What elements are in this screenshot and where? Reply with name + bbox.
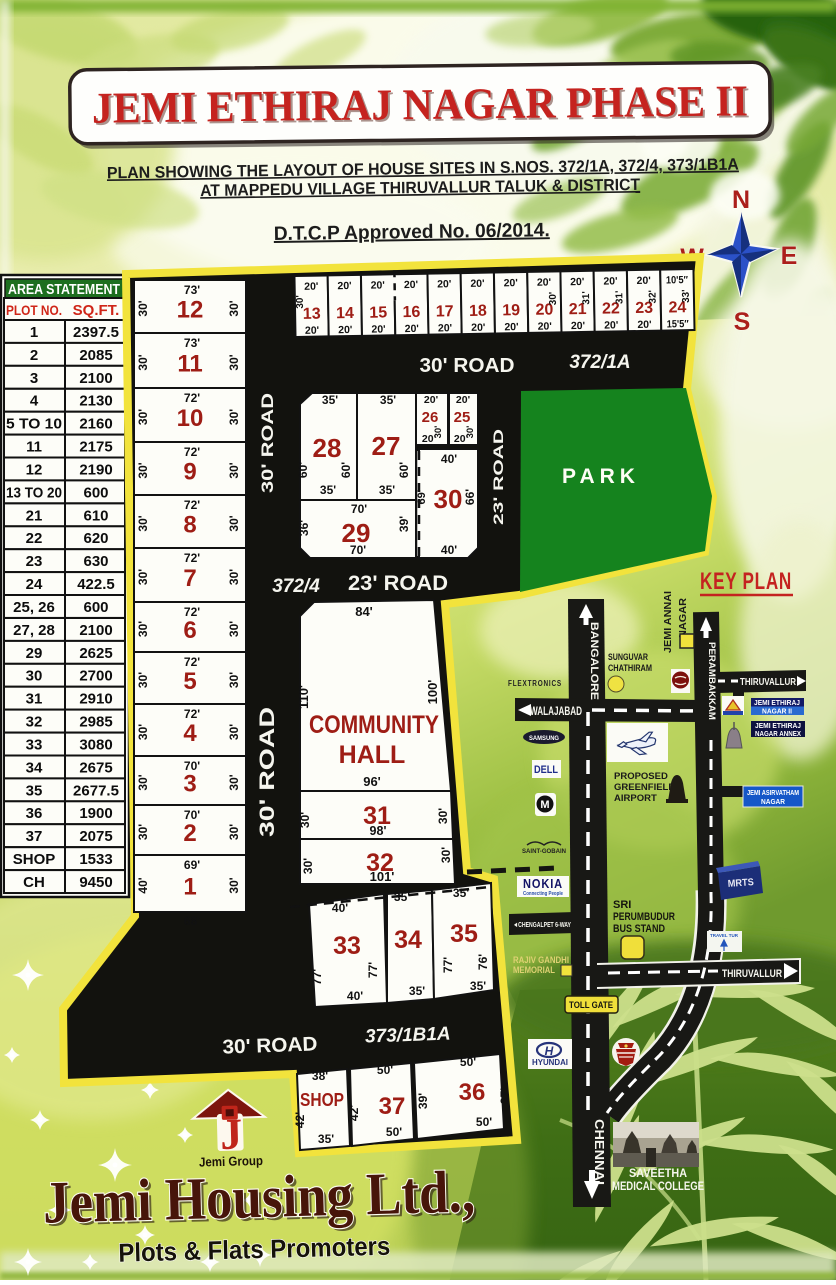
svg-text:20': 20' [371,279,385,291]
svg-text:1900: 1900 [79,805,112,822]
svg-text:RAJIV GANDHI: RAJIV GANDHI [513,955,569,965]
svg-text:20': 20' [538,321,552,333]
svg-text:KEY PLAN: KEY PLAN [700,568,792,595]
svg-text:35': 35' [380,393,396,407]
svg-text:98': 98' [370,824,387,838]
svg-text:HALL: HALL [339,741,406,769]
svg-text:2: 2 [30,347,38,364]
svg-text:CH: CH [23,874,45,891]
svg-text:NAGAR: NAGAR [677,598,689,638]
svg-text:20': 20' [604,319,618,331]
svg-text:30: 30 [434,484,463,514]
svg-text:30': 30' [227,672,241,688]
svg-text:66': 66' [463,489,477,505]
svg-text:36': 36' [297,520,311,536]
svg-text:32': 32' [648,290,659,304]
svg-text:35: 35 [450,920,478,948]
svg-text:3: 3 [183,771,196,798]
svg-text:600: 600 [83,484,108,501]
svg-text:20': 20' [571,320,585,332]
svg-text:MEDICAL COLLEGE: MEDICAL COLLEGE [612,1179,704,1193]
svg-text:68': 68' [184,914,200,928]
svg-text:33: 33 [26,737,43,754]
svg-text:THIRUVALLUR: THIRUVALLUR [740,677,797,688]
svg-text:35': 35' [453,886,469,900]
svg-text:50': 50' [476,1115,492,1129]
svg-text:35': 35' [322,393,338,407]
svg-text:DELL: DELL [534,764,558,776]
svg-text:2130: 2130 [79,393,112,410]
svg-text:33: 33 [333,932,361,960]
svg-text:Connecting People: Connecting People [523,891,563,897]
svg-text:23: 23 [26,553,43,570]
svg-text:30': 30' [301,858,315,874]
svg-text:630: 630 [83,553,108,570]
svg-text:2085: 2085 [79,347,112,364]
svg-text:2175: 2175 [79,439,112,456]
svg-text:20': 20' [337,280,351,292]
svg-text:30': 30' [298,812,312,828]
svg-text:7: 7 [183,565,196,592]
svg-text:19: 19 [502,302,520,319]
svg-text:37: 37 [26,828,43,845]
svg-text:PROPOSED: PROPOSED [614,771,668,782]
svg-text:25: 25 [454,409,471,426]
svg-text:34: 34 [26,759,43,776]
svg-text:60': 60' [339,462,353,478]
svg-text:20': 20' [456,394,470,406]
svg-text:42': 42' [293,1112,307,1128]
svg-text:SQ.FT.: SQ.FT. [73,302,120,319]
svg-text:D.T.C.P Approved No. 06/2014.: D.T.C.P Approved No. 06/2014. [274,219,550,245]
svg-text:2397.5: 2397.5 [73,324,119,341]
svg-text:23' ROAD: 23' ROAD [490,429,506,525]
svg-text:30': 30' [136,672,150,688]
svg-text:30': 30' [548,292,559,306]
svg-text:36: 36 [26,805,43,822]
svg-text:1: 1 [183,874,196,901]
svg-text:20': 20' [537,277,551,289]
svg-text:20': 20' [338,324,352,336]
svg-text:5 TO 10: 5 TO 10 [6,416,62,433]
svg-text:JEMI ASIRVATHAM: JEMI ASIRVATHAM [747,788,799,797]
svg-text:2100: 2100 [79,370,112,387]
svg-text:610: 610 [83,507,108,524]
svg-text:AIRPORT: AIRPORT [614,793,657,804]
svg-text:73': 73' [184,283,200,297]
svg-text:28: 28 [313,433,342,463]
svg-text:1533: 1533 [79,851,112,868]
svg-text:30': 30' [227,621,241,637]
svg-text:18: 18 [469,303,487,320]
svg-text:SRI: SRI [613,899,631,911]
svg-text:30': 30' [227,354,241,370]
svg-text:30': 30' [136,774,150,790]
svg-text:77': 77' [366,962,380,978]
svg-text:30': 30' [227,409,241,425]
svg-text:20': 20' [637,319,651,331]
svg-text:38': 38' [312,1069,328,1083]
svg-text:33': 33' [681,289,692,303]
svg-text:29: 29 [26,645,43,662]
svg-text:20': 20' [424,394,438,406]
svg-text:2910: 2910 [79,691,112,708]
svg-text:2677.5: 2677.5 [73,782,119,799]
svg-text:10'5″: 10'5″ [666,274,688,286]
svg-text:MEMORIAL: MEMORIAL [513,965,555,975]
svg-text:36: 36 [459,1079,486,1106]
svg-text:GREENFIELD: GREENFIELD [614,782,675,793]
svg-text:30': 30' [227,569,241,585]
svg-text:SAINT-GOBAIN: SAINT-GOBAIN [522,848,566,855]
svg-text:30' ROAD: 30' ROAD [420,355,515,377]
svg-text:12: 12 [177,297,204,324]
svg-text:69': 69' [416,489,428,504]
svg-text:50': 50' [386,1125,402,1139]
svg-text:37: 37 [379,1093,406,1120]
svg-text:72': 72' [184,551,200,565]
svg-text:20': 20' [305,325,319,337]
svg-text:35': 35' [394,890,410,904]
svg-text:40': 40' [136,877,150,893]
svg-text:AREA STATEMENT: AREA STATEMENT [8,282,120,298]
svg-text:20': 20' [470,278,484,290]
svg-text:20': 20' [404,279,418,291]
svg-text:34: 34 [394,926,422,954]
svg-text:20': 20' [504,321,518,333]
svg-text:37': 37' [498,1088,512,1104]
svg-text:FLEXTRONICS: FLEXTRONICS [508,679,562,688]
svg-text:72': 72' [184,707,200,721]
svg-text:Jemi Housing Ltd.,: Jemi Housing Ltd., [42,1158,476,1235]
svg-text:72': 72' [184,498,200,512]
svg-text:PARK: PARK [562,465,640,488]
svg-text:SHOP: SHOP [13,851,56,868]
svg-text:30': 30' [136,724,150,740]
svg-text:30' ROAD: 30' ROAD [258,393,277,493]
svg-text:15'5″: 15'5″ [667,318,689,330]
svg-text:MRTS: MRTS [727,877,754,890]
svg-text:27, 28: 27, 28 [13,622,55,639]
svg-text:2625: 2625 [79,645,112,662]
svg-text:TOLL GATE: TOLL GATE [569,1000,613,1010]
svg-text:373/1B1A: 373/1B1A [365,1024,451,1048]
svg-text:76': 76' [476,954,490,970]
svg-text:30': 30' [136,354,150,370]
svg-text:84': 84' [355,604,373,619]
svg-text:72': 72' [184,655,200,669]
svg-text:WALAJABAD: WALAJABAD [530,706,582,718]
svg-text:10: 10 [177,405,204,432]
svg-text:NOKIA: NOKIA [523,877,563,891]
svg-text:101': 101' [370,869,395,884]
svg-text:6: 6 [183,617,196,644]
svg-text:H: H [545,1044,554,1058]
svg-text:40': 40' [332,901,348,915]
svg-text:72': 72' [184,391,200,405]
svg-text:77': 77' [310,969,324,985]
svg-text:35': 35' [409,984,425,998]
svg-text:N: N [732,186,750,214]
svg-text:30': 30' [136,569,150,585]
svg-text:NAGAR II: NAGAR II [762,709,792,716]
svg-text:39': 39' [416,1093,430,1109]
svg-text:◄CHENGALPET 6-WAY: ◄CHENGALPET 6-WAY [513,920,571,929]
svg-text:100': 100' [425,680,440,705]
svg-text:70': 70' [351,502,367,516]
svg-text:30': 30' [136,462,150,478]
svg-text:30': 30' [436,808,450,824]
svg-text:31: 31 [26,691,43,708]
svg-text:20': 20' [504,277,518,289]
svg-text:2075: 2075 [79,828,112,845]
svg-text:4: 4 [183,720,197,747]
svg-text:30': 30' [227,515,241,531]
svg-text:SUNGUVAR: SUNGUVAR [608,652,648,663]
svg-text:2190: 2190 [79,461,112,478]
svg-text:30': 30' [439,847,453,863]
svg-text:69': 69' [184,858,200,872]
svg-text:40': 40' [441,452,457,466]
svg-text:73': 73' [184,336,200,350]
svg-text:35': 35' [320,483,336,497]
svg-text:30': 30' [136,515,150,531]
svg-text:9: 9 [183,459,196,486]
svg-text:40': 40' [441,543,457,557]
svg-text:9450: 9450 [79,874,112,891]
svg-text:20': 20' [471,322,485,334]
svg-text:110': 110' [296,685,311,709]
svg-text:23' ROAD: 23' ROAD [348,572,448,595]
svg-text:2100: 2100 [79,622,112,639]
svg-text:PERAMBAKKAM: PERAMBAKKAM [706,642,717,720]
svg-text:11: 11 [177,351,202,378]
svg-text:4: 4 [30,393,39,410]
svg-text:20': 20' [603,275,617,287]
svg-text:13 TO 20: 13 TO 20 [6,484,62,501]
svg-text:30': 30' [136,824,150,840]
svg-text:SAVEETHA: SAVEETHA [629,1166,687,1180]
svg-text:30': 30' [227,724,241,740]
svg-text:CHATHIRAM: CHATHIRAM [608,663,652,674]
svg-text:THIRUVALLUR: THIRUVALLUR [722,968,782,980]
svg-text:30': 30' [227,774,241,790]
svg-text:24: 24 [26,576,43,593]
svg-text:BUS STAND: BUS STAND [613,923,665,935]
svg-text:26: 26 [422,409,439,426]
svg-text:22: 22 [26,530,43,547]
svg-text:35': 35' [379,483,395,497]
svg-text:BANGALORE: BANGALORE [588,622,600,700]
svg-text:30': 30' [227,462,241,478]
svg-text:SHOP: SHOP [300,1090,344,1110]
svg-text:2985: 2985 [79,714,112,731]
svg-text:30: 30 [26,668,43,685]
svg-text:96': 96' [363,774,381,789]
svg-text:20': 20' [422,433,436,445]
svg-text:40': 40' [347,989,363,1003]
svg-text:E: E [781,242,798,270]
svg-text:2160: 2160 [79,416,112,433]
svg-text:17: 17 [436,303,454,320]
svg-text:20': 20' [304,281,318,293]
svg-text:20': 20' [637,275,651,287]
svg-text:16: 16 [402,304,420,321]
svg-text:25, 26: 25, 26 [13,599,55,616]
svg-text:30' ROAD: 30' ROAD [256,707,279,837]
svg-text:60': 60' [296,462,310,478]
svg-text:30': 30' [136,621,150,637]
svg-text:20': 20' [437,278,451,290]
svg-text:42': 42' [347,1105,361,1121]
svg-text:NAGAR ANNEX: NAGAR ANNEX [755,731,801,738]
svg-text:20': 20' [405,323,419,335]
svg-text:2: 2 [183,820,196,847]
svg-text:60': 60' [397,462,411,478]
svg-text:372/1A: 372/1A [569,352,630,373]
svg-text:3080: 3080 [79,737,112,754]
svg-text:20': 20' [438,322,452,334]
svg-text:8: 8 [183,512,196,539]
svg-text:35': 35' [318,1132,334,1146]
svg-text:20': 20' [454,433,468,445]
svg-text:2675: 2675 [79,759,112,776]
svg-text:12: 12 [26,461,43,478]
svg-text:21: 21 [26,507,43,524]
svg-text:50': 50' [377,1063,393,1077]
svg-text:30': 30' [295,295,306,309]
svg-text:TRAVEL TUR: TRAVEL TUR [710,933,739,938]
svg-text:30': 30' [227,824,241,840]
svg-text:30': 30' [136,409,150,425]
svg-text:372/4: 372/4 [272,576,320,597]
svg-text:COMMUNITY: COMMUNITY [309,711,439,739]
svg-text:JEMI ETHIRAJ: JEMI ETHIRAJ [754,700,800,707]
svg-text:SAMSUNG: SAMSUNG [529,735,559,742]
svg-text:11: 11 [26,439,42,456]
svg-text:70': 70' [350,543,366,557]
svg-text:35: 35 [26,782,43,799]
svg-text:27: 27 [372,431,401,461]
svg-text:1: 1 [30,324,38,341]
svg-text:30': 30' [227,300,241,316]
svg-text:14: 14 [336,305,354,322]
svg-text:20': 20' [371,323,385,335]
svg-text:JEMI ETHIRAJ: JEMI ETHIRAJ [755,723,801,730]
svg-text:15: 15 [369,304,387,321]
svg-text:30': 30' [227,877,241,893]
svg-text:50': 50' [460,1055,476,1069]
svg-text:620: 620 [83,530,108,547]
svg-text:32: 32 [26,714,43,731]
svg-text:77': 77' [441,957,455,973]
svg-text:NAGAR: NAGAR [761,797,786,806]
svg-text:2700: 2700 [79,668,112,685]
svg-text:20': 20' [570,276,584,288]
svg-text:M: M [540,799,549,811]
svg-text:30' ROAD: 30' ROAD [222,1033,318,1058]
svg-text:PERUMBUDUR: PERUMBUDUR [613,911,675,923]
svg-text:S: S [734,308,751,336]
svg-text:3: 3 [30,370,38,387]
svg-text:HYUNDAI: HYUNDAI [532,1058,568,1067]
svg-text:JEMI ANNAI: JEMI ANNAI [662,591,674,653]
svg-text:35': 35' [470,979,486,993]
svg-text:JEMI ETHIRAJ NAGAR PHASE II: JEMI ETHIRAJ NAGAR PHASE II [92,76,749,132]
svg-text:39': 39' [397,516,411,532]
svg-text:72': 72' [184,445,200,459]
svg-text:422.5: 422.5 [77,576,115,593]
svg-text:30': 30' [136,300,150,316]
svg-text:5: 5 [183,668,196,695]
svg-text:31': 31' [614,290,625,304]
svg-text:600: 600 [83,599,108,616]
svg-text:31': 31' [581,291,592,305]
svg-text:PLOT NO.: PLOT NO. [6,302,62,318]
